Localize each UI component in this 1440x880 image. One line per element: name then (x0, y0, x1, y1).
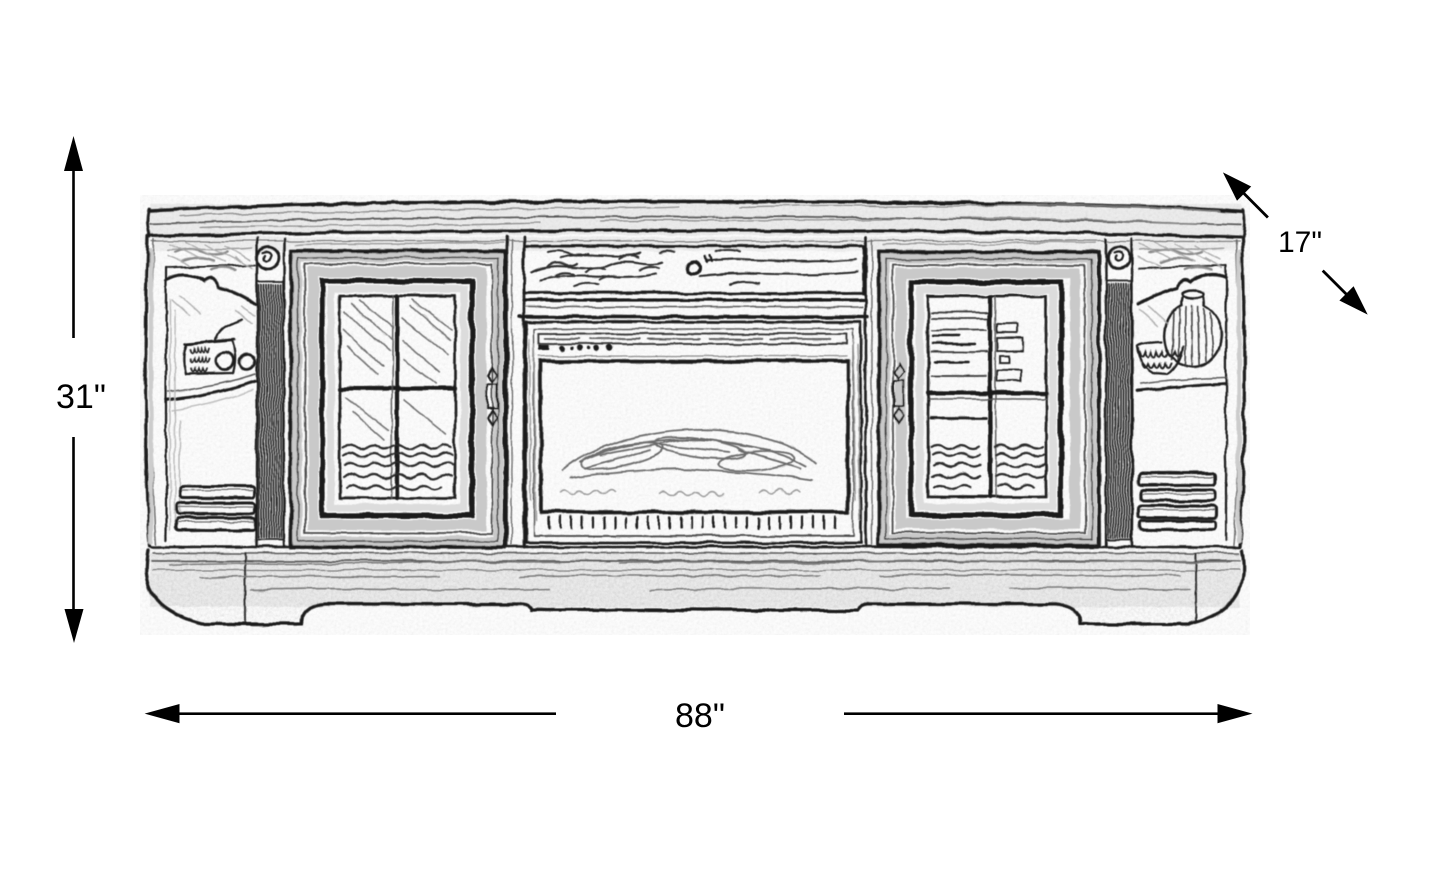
svg-text:31": 31" (56, 378, 106, 416)
svg-text:88": 88" (675, 697, 725, 735)
svg-text:17": 17" (1278, 226, 1322, 259)
